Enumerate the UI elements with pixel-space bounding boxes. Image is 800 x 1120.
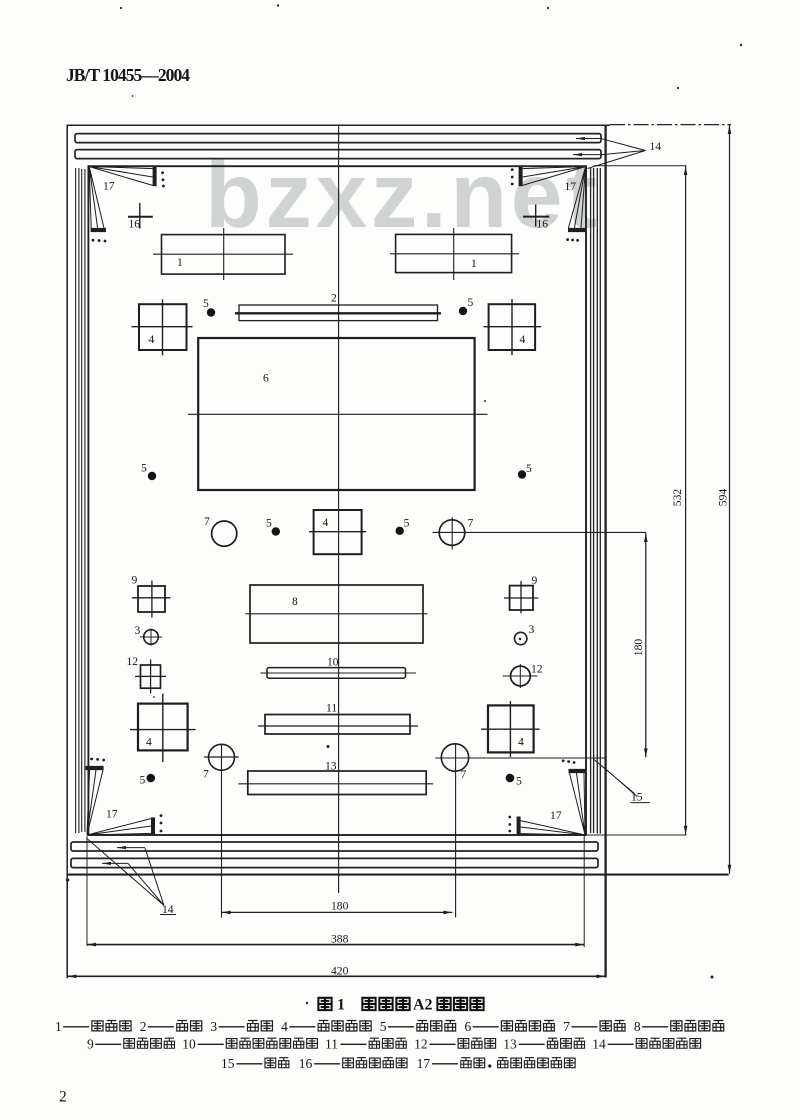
svg-text:16: 16 bbox=[537, 218, 549, 231]
svg-text:5: 5 bbox=[141, 462, 147, 475]
svg-text:9: 9 bbox=[87, 1037, 94, 1052]
svg-text:8: 8 bbox=[292, 595, 298, 608]
svg-text:A2: A2 bbox=[413, 997, 433, 1014]
svg-text:4: 4 bbox=[518, 736, 524, 749]
svg-text:17: 17 bbox=[550, 809, 562, 822]
svg-text:5: 5 bbox=[404, 517, 410, 530]
svg-text:13: 13 bbox=[325, 760, 337, 773]
svg-text:11: 11 bbox=[326, 702, 337, 715]
svg-text:5: 5 bbox=[516, 775, 522, 788]
svg-text:17: 17 bbox=[106, 808, 118, 821]
svg-text:JB/T 10455—2004: JB/T 10455—2004 bbox=[66, 65, 190, 85]
svg-text:8: 8 bbox=[634, 1019, 641, 1034]
svg-text:17: 17 bbox=[417, 1056, 431, 1071]
svg-text:388: 388 bbox=[331, 933, 349, 946]
svg-text:2: 2 bbox=[59, 1089, 67, 1106]
svg-text:180: 180 bbox=[632, 639, 645, 657]
svg-text:17: 17 bbox=[103, 180, 115, 193]
svg-text:7: 7 bbox=[204, 515, 210, 528]
svg-text:12: 12 bbox=[531, 663, 543, 676]
svg-text:7: 7 bbox=[203, 768, 209, 781]
svg-text:4: 4 bbox=[323, 516, 329, 529]
svg-text:3: 3 bbox=[210, 1019, 217, 1034]
svg-text:7: 7 bbox=[468, 517, 474, 530]
svg-text:14: 14 bbox=[162, 903, 174, 916]
svg-text:12: 12 bbox=[414, 1037, 428, 1052]
svg-text:2: 2 bbox=[331, 292, 337, 305]
svg-text:4: 4 bbox=[149, 333, 155, 346]
svg-text:6: 6 bbox=[263, 372, 269, 385]
svg-text:1: 1 bbox=[337, 997, 345, 1014]
svg-text:11: 11 bbox=[325, 1037, 338, 1052]
svg-text:3: 3 bbox=[529, 623, 535, 636]
svg-text:7: 7 bbox=[461, 768, 467, 781]
svg-text:14: 14 bbox=[592, 1037, 606, 1052]
svg-text:1: 1 bbox=[55, 1019, 62, 1034]
svg-text:10: 10 bbox=[327, 656, 339, 669]
svg-text:2: 2 bbox=[140, 1019, 147, 1034]
svg-text:16: 16 bbox=[299, 1056, 313, 1071]
svg-text:5: 5 bbox=[140, 774, 146, 787]
svg-text:5: 5 bbox=[380, 1019, 387, 1034]
svg-text:1: 1 bbox=[177, 256, 183, 269]
svg-text:532: 532 bbox=[671, 489, 684, 507]
svg-text:180: 180 bbox=[331, 900, 349, 913]
svg-text:3: 3 bbox=[135, 624, 141, 637]
svg-text:6: 6 bbox=[465, 1019, 472, 1034]
svg-text:5: 5 bbox=[203, 297, 209, 310]
svg-text:9: 9 bbox=[532, 574, 538, 587]
svg-text:15: 15 bbox=[221, 1056, 235, 1071]
svg-text:17: 17 bbox=[565, 180, 577, 193]
svg-text:420: 420 bbox=[331, 965, 349, 978]
svg-text:7: 7 bbox=[563, 1019, 570, 1034]
svg-text:4: 4 bbox=[520, 333, 526, 346]
svg-text:16: 16 bbox=[129, 218, 141, 231]
svg-text:5: 5 bbox=[468, 296, 474, 309]
svg-text:13: 13 bbox=[503, 1037, 517, 1052]
svg-text:5: 5 bbox=[526, 462, 532, 475]
svg-text:10: 10 bbox=[182, 1037, 196, 1052]
svg-text:12: 12 bbox=[127, 655, 139, 668]
svg-text:4: 4 bbox=[146, 736, 152, 749]
svg-text:594: 594 bbox=[717, 489, 730, 507]
svg-text:4: 4 bbox=[281, 1019, 288, 1034]
svg-text:15: 15 bbox=[631, 791, 643, 804]
svg-text:14: 14 bbox=[650, 140, 662, 153]
svg-text:9: 9 bbox=[132, 574, 138, 587]
svg-text:1: 1 bbox=[471, 257, 477, 270]
svg-text:5: 5 bbox=[266, 517, 272, 530]
